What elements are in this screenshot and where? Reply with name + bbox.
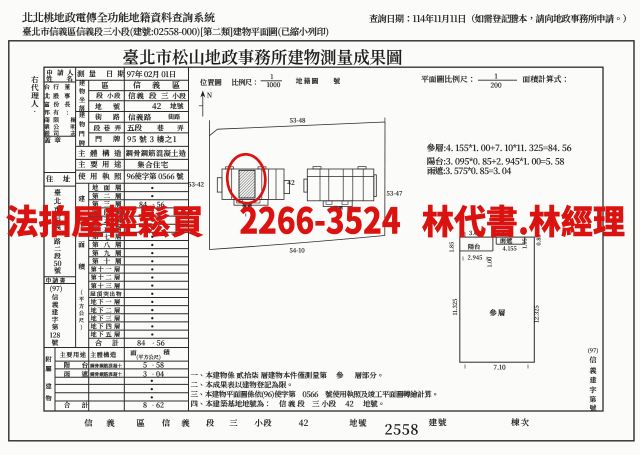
svg-text:量: 量 xyxy=(89,69,97,80)
svg-text:97年 02月 01日: 97年 02月 01日 xyxy=(127,69,176,80)
svg-text:三: 三 xyxy=(229,417,238,429)
svg-text:路: 路 xyxy=(112,113,120,123)
svg-text:構: 構 xyxy=(102,148,110,159)
svg-text:比例尺：: 比例尺： xyxy=(232,78,259,88)
svg-text:區: 區 xyxy=(172,80,180,91)
svg-text:三: 三 xyxy=(106,281,113,290)
svg-text:義: 義 xyxy=(152,80,160,91)
svg-text:7.10: 7.10 xyxy=(493,362,506,371)
svg-text:段: 段 xyxy=(206,417,215,429)
svg-text:門: 門 xyxy=(95,135,102,145)
svg-text:使: 使 xyxy=(78,171,86,182)
svg-text:區: 區 xyxy=(136,417,144,429)
svg-text:期: 期 xyxy=(118,69,126,80)
svg-text:平: 平 xyxy=(79,296,85,303)
svg-text:(97): (97) xyxy=(588,346,599,354)
svg-text:弄: 弄 xyxy=(177,124,184,134)
svg-text:建: 建 xyxy=(45,381,52,390)
svg-text:造: 造 xyxy=(114,148,122,159)
svg-text:2558: 2558 xyxy=(385,419,419,439)
svg-text:住: 住 xyxy=(46,174,54,185)
svg-text:小段: 小段 xyxy=(107,91,121,100)
svg-text:尺: 尺 xyxy=(79,317,85,324)
svg-text:弄: 弄 xyxy=(115,122,122,132)
svg-text:牌: 牌 xyxy=(78,139,86,148)
svg-text:2.945: 2.945 xyxy=(468,254,483,262)
svg-text:1000: 1000 xyxy=(267,80,281,89)
svg-text:三: 三 xyxy=(161,90,169,101)
svg-text:物: 物 xyxy=(45,393,52,402)
svg-text:4.155: 4.155 xyxy=(503,244,517,252)
svg-text:主: 主 xyxy=(78,148,86,159)
svg-text:雨遮:3. 575*0. 85=3. 04: 雨遮:3. 575*0. 85=3. 04 xyxy=(427,165,512,177)
svg-text:建: 建 xyxy=(590,375,597,385)
svg-text:地號: 地號 xyxy=(170,101,184,111)
svg-text:董: 董 xyxy=(64,82,70,91)
svg-text:04: 04 xyxy=(156,369,164,379)
svg-text:執: 執 xyxy=(102,171,110,182)
svg-text:42: 42 xyxy=(152,101,162,112)
svg-text:62: 62 xyxy=(156,401,164,411)
svg-text:(: ( xyxy=(81,289,83,296)
svg-text:義: 義 xyxy=(106,417,115,429)
svg-text:要: 要 xyxy=(90,159,98,170)
svg-text:84: 84 xyxy=(137,338,145,348)
svg-text:段: 段 xyxy=(149,90,157,101)
svg-text:建號: 建號 xyxy=(429,417,448,429)
svg-text:地籍圖: 地籍圖 xyxy=(296,77,319,87)
svg-text:方: 方 xyxy=(79,303,84,310)
svg-text:計: 計 xyxy=(112,338,119,348)
svg-text:雨: 雨 xyxy=(64,368,71,378)
svg-text:200: 200 xyxy=(490,81,502,90)
svg-text:參層:4. 155*1. 00+7. 10*11. 325=: 參層:4. 155*1. 00+7. 10*11. 325=84. 56 xyxy=(427,142,572,154)
svg-text:地: 地 xyxy=(95,102,103,112)
svg-text:物: 物 xyxy=(79,120,86,129)
svg-text:要: 要 xyxy=(66,350,72,359)
svg-text:地號: 地號 xyxy=(349,417,367,429)
svg-text:合: 合 xyxy=(94,338,102,348)
svg-text:主: 主 xyxy=(78,159,86,170)
svg-text:11.325: 11.325 xyxy=(451,299,459,316)
svg-text:蓋: 蓋 xyxy=(44,136,51,145)
svg-text:位置圖: 位置圖 xyxy=(200,78,222,88)
svg-text:鋼骨鋼筋混凝土造: 鋼骨鋼筋混凝土造 xyxy=(126,148,187,159)
svg-text:2266-3524: 2266-3524 xyxy=(240,194,401,245)
svg-text:小段: 小段 xyxy=(255,417,273,429)
svg-text:鋼骨鋼筋混凝土: 鋼骨鋼筋混凝土 xyxy=(90,363,123,370)
svg-text:信: 信 xyxy=(590,356,597,366)
svg-text:林代書.林經理: 林代書.林經理 xyxy=(422,195,625,244)
svg-text:12.325: 12.325 xyxy=(533,305,541,322)
svg-text:遮: 遮 xyxy=(81,368,89,378)
svg-text:積: 積 xyxy=(164,348,171,357)
svg-text:四、本建築基地地號為： 信 義 段 三 小段 42 地號: 四、本建築基地地號為： 信 義 段 三 小段 42 地號。 xyxy=(191,398,385,409)
svg-text:8: 8 xyxy=(143,401,147,411)
svg-text:十: 十 xyxy=(98,281,105,290)
svg-text:街: 街 xyxy=(95,113,102,123)
svg-text:門: 門 xyxy=(79,129,85,138)
svg-text:章: 章 xyxy=(54,136,61,145)
svg-text:1: 1 xyxy=(494,72,497,81)
svg-text:巷: 巷 xyxy=(157,124,164,134)
svg-text:段: 段 xyxy=(96,91,103,101)
svg-text:用: 用 xyxy=(73,350,79,359)
svg-text:臺北市松山地政事務所建物測量成果圖: 臺北市松山地政事務所建物測量成果圖 xyxy=(123,43,403,68)
svg-text:合: 合 xyxy=(63,400,71,410)
svg-text:層: 層 xyxy=(114,281,120,290)
svg-text:信: 信 xyxy=(162,417,171,429)
svg-text:號: 號 xyxy=(113,102,121,112)
svg-text:信義路: 信義路 xyxy=(128,112,152,123)
svg-text:計: 計 xyxy=(82,400,89,410)
svg-text:字: 字 xyxy=(590,385,597,395)
svg-text:用: 用 xyxy=(102,159,110,170)
svg-text:義: 義 xyxy=(181,417,190,429)
svg-text:42: 42 xyxy=(299,417,309,429)
svg-text:街路: 街路 xyxy=(168,112,180,121)
svg-text:區: 區 xyxy=(101,80,109,91)
svg-text:公: 公 xyxy=(79,310,85,317)
svg-text:巷: 巷 xyxy=(104,122,111,132)
svg-text:53-42: 53-42 xyxy=(188,180,205,189)
svg-text:鋼骨鋼筋混凝土: 鋼骨鋼筋混凝土 xyxy=(90,371,123,378)
svg-text:號: 號 xyxy=(51,337,59,347)
svg-text:平面圖比例尺：: 平面圖比例尺： xyxy=(420,74,476,85)
svg-text:建: 建 xyxy=(79,110,86,119)
svg-text:N: N xyxy=(207,91,212,100)
svg-text:牌: 牌 xyxy=(113,135,121,145)
svg-text:信: 信 xyxy=(84,417,93,429)
svg-text:號: 號 xyxy=(590,403,598,413)
svg-text:棟次: 棟次 xyxy=(510,417,530,429)
svg-text:用: 用 xyxy=(90,171,98,182)
svg-text:): ) xyxy=(81,324,83,331)
svg-text:臺北市信義區信義段三小段(建號:02558-000)[第二類: 臺北市信義區信義段三小段(建號:02558-000)[第二類]建物平面圖(已縮小… xyxy=(22,24,328,38)
svg-text:日: 日 xyxy=(106,69,114,80)
svg-text:號: 號 xyxy=(333,77,341,87)
svg-text:造: 造 xyxy=(110,350,117,359)
svg-text:請: 請 xyxy=(57,68,64,77)
svg-text:集合住宅: 集合住宅 xyxy=(137,160,169,171)
svg-text:‧: ‧ xyxy=(150,338,156,347)
svg-text:體: 體 xyxy=(89,148,98,159)
svg-text:附: 附 xyxy=(45,354,52,363)
svg-text:信義: 信義 xyxy=(128,90,145,101)
svg-text:信: 信 xyxy=(133,80,141,91)
svg-text:台: 台 xyxy=(44,82,50,91)
svg-text:五段: 五段 xyxy=(127,123,142,134)
svg-text:屬: 屬 xyxy=(45,364,52,373)
svg-text:‧: ‧ xyxy=(31,107,38,117)
svg-text:3: 3 xyxy=(143,369,147,379)
svg-text:95 號 3 樓之1: 95 號 3 樓之1 xyxy=(127,134,177,145)
svg-text:行: 行 xyxy=(53,82,59,91)
svg-text:途: 途 xyxy=(114,159,122,170)
svg-text:積: 積 xyxy=(78,261,85,271)
svg-text:42: 42 xyxy=(287,178,295,187)
svg-text:址: 址 xyxy=(63,174,71,185)
svg-text:54-10: 54-10 xyxy=(289,246,305,255)
svg-text:96使字第 0566 號: 96使字第 0566 號 xyxy=(127,171,185,182)
svg-text:照: 照 xyxy=(114,171,122,182)
svg-text:53-48: 53-48 xyxy=(289,115,306,124)
svg-text:段: 段 xyxy=(94,122,101,132)
svg-text:查詢日期：114年11月11日（如需登記謄本，請向地政事務所: 查詢日期：114年11月11日（如需登記謄本，請向地政事務所申請。） xyxy=(369,11,631,25)
svg-text:第: 第 xyxy=(91,281,98,290)
svg-text::: : xyxy=(66,107,68,116)
svg-text:面積計算式：: 面積計算式： xyxy=(523,74,570,85)
svg-text:參層: 參層 xyxy=(489,307,506,318)
svg-text:義: 義 xyxy=(590,366,597,376)
svg-text:途: 途 xyxy=(79,350,86,359)
svg-text:法拍屋輕鬆買: 法拍屋輕鬆買 xyxy=(6,195,204,244)
